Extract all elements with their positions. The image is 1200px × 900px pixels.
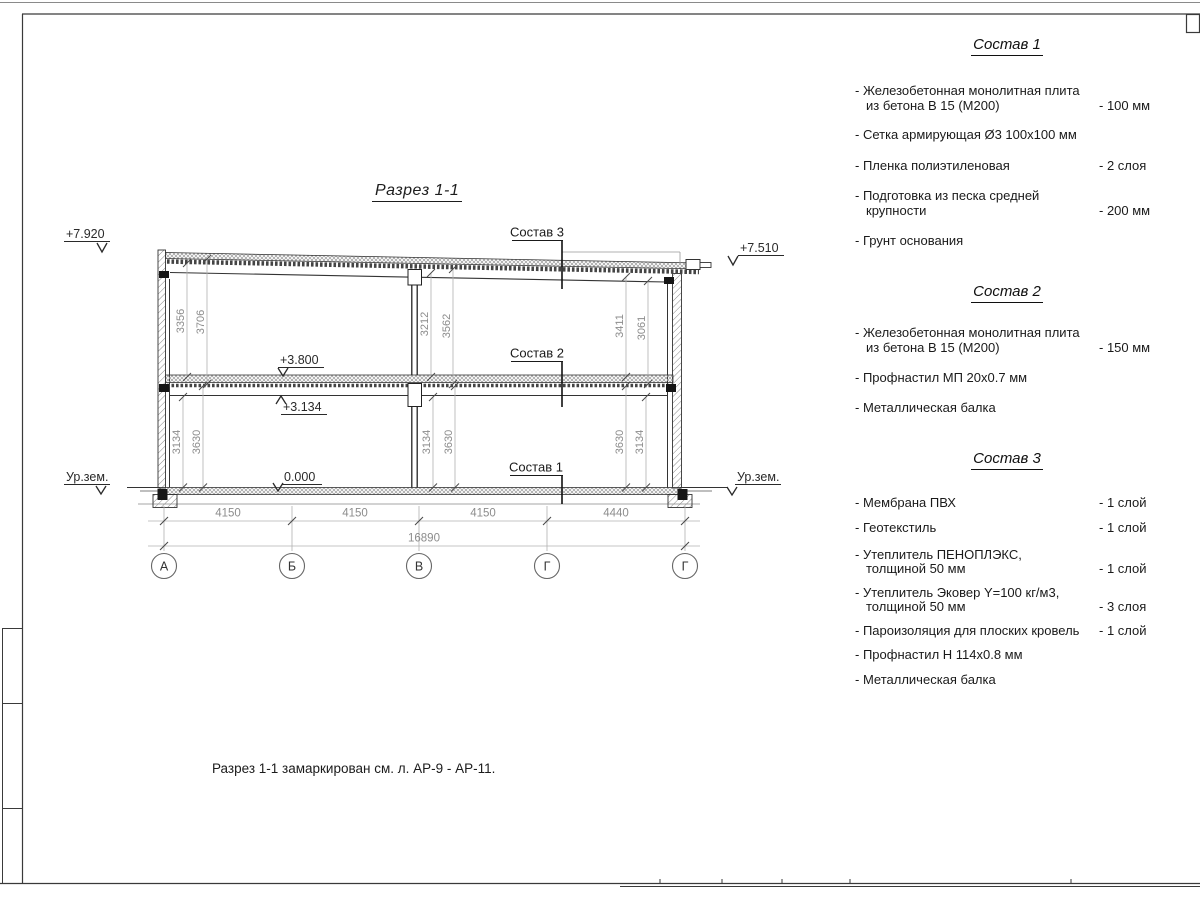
level-zero: 0.000: [284, 470, 315, 484]
dim-label: 3706: [195, 310, 207, 334]
axis-label: Б: [288, 560, 296, 574]
dimension-ticks: [179, 255, 652, 492]
drawing-title: Разрез 1-1: [372, 182, 462, 200]
composition-3-title: Состав 3: [897, 450, 1117, 467]
axis-label: Г: [544, 560, 551, 574]
material-item: - Профнастил МП 20х0.7 мм: [855, 370, 1027, 385]
horizontal-dimensions: 4150 4150 4150 4440 16890: [148, 506, 700, 551]
span-dim: 4150: [342, 508, 368, 520]
dim-label: 3356: [175, 309, 187, 333]
material-item: - Пароизоляция для плоских кровель: [855, 623, 1079, 638]
dim-label: 3212: [419, 312, 431, 336]
material-item: - Металлическая балка: [855, 672, 996, 687]
dim-label: 3134: [634, 430, 646, 454]
callout-sostav2: Состав 2: [510, 346, 564, 361]
ground-level-left: Ур.зем.: [66, 470, 108, 484]
dim-label: 3411: [614, 314, 626, 338]
material-item: - Геотекстиль: [855, 520, 936, 535]
material-item: - Железобетонная монолитная плита: [855, 83, 1080, 98]
ground-slab: [127, 488, 728, 508]
material-item: - Металлическая балка: [855, 400, 996, 415]
span-dim: 4440: [603, 508, 629, 520]
axis-label: В: [415, 560, 423, 574]
ground-level-right: Ур.зем.: [737, 470, 779, 484]
span-dim: 4150: [470, 508, 496, 520]
dim-label: 3562: [441, 314, 453, 338]
dim-label: 3061: [636, 316, 648, 340]
axis-label: Г: [682, 560, 689, 574]
material-quantity: - 150 мм: [1099, 340, 1150, 355]
callout-sostav3: Состав 3: [510, 225, 564, 240]
material-quantity: - 200 мм: [1099, 203, 1150, 218]
level-beam: +3.134: [283, 400, 322, 414]
dim-label: 3134: [171, 430, 183, 454]
beam-seat-left: [159, 271, 169, 278]
material-item-2: толщиной 50 мм: [866, 561, 966, 576]
material-quantity: - 1 слой: [1099, 520, 1147, 535]
level-top-left: +7.920: [66, 227, 105, 241]
material-item: - Грунт основания: [855, 233, 963, 248]
beam-seat-right: [664, 277, 674, 284]
span-dim: 4150: [215, 508, 241, 520]
material-quantity: - 1 слой: [1099, 561, 1147, 576]
sheet-note: Разрез 1-1 замаркирован см. л. АР-9 - АР…: [212, 761, 495, 776]
material-quantity: - 3 слоя: [1099, 599, 1146, 614]
right-wall: [673, 274, 682, 489]
title-block-ticks: [660, 879, 1071, 884]
dim-label: 3134: [421, 430, 433, 454]
roof-slab: [159, 252, 711, 284]
dim-label: 3630: [614, 430, 626, 454]
callout-sostav1: Состав 1: [509, 460, 563, 475]
material-quantity: - 1 слой: [1099, 495, 1147, 510]
composition-1-title: Состав 1: [897, 36, 1117, 53]
material-quantity: - 2 слоя: [1099, 158, 1146, 173]
material-item: - Утеплитель Эковер Y=100 кг/м3,: [855, 585, 1059, 600]
material-item: - Пленка полиэтиленовая: [855, 158, 1010, 173]
composition-2-title: Состав 2: [897, 283, 1117, 300]
total-dim: 16890: [408, 533, 440, 545]
material-item-2: толщиной 50 мм: [866, 599, 966, 614]
axis-label: А: [160, 560, 169, 574]
material-item: - Профнастил Н 114х0.8 мм: [855, 647, 1023, 662]
material-item-2: из бетона В 15 (М200): [866, 98, 1000, 113]
vertical-dimensions: [183, 259, 648, 488]
dim-label: 3630: [443, 430, 455, 454]
material-item: - Сетка армирующая Ø3 100х100 мм: [855, 127, 1077, 142]
left-wall: [158, 250, 166, 488]
axis-bubbles: А Б В Г Г: [152, 554, 698, 579]
material-quantity: - 100 мм: [1099, 98, 1150, 113]
material-item-2: крупности: [866, 203, 926, 218]
material-item: - Мембрана ПВХ: [855, 495, 956, 510]
material-item: - Подготовка из песка средней: [855, 188, 1039, 203]
walls: [158, 250, 682, 488]
material-quantity: - 1 слой: [1099, 623, 1147, 638]
material-item: - Утеплитель ПЕНОПЛЭКС,: [855, 547, 1022, 562]
dim-label: 3630: [191, 430, 203, 454]
level-top-right: +7.510: [740, 241, 779, 255]
level-floor2: +3.800: [280, 353, 319, 367]
drawing-sheet: 3356 3706 3212 3562 3411 3061 3134 3630 …: [0, 0, 1200, 900]
material-item: - Железобетонная монолитная плита: [855, 325, 1080, 340]
material-item-2: из бетона В 15 (М200): [866, 340, 1000, 355]
